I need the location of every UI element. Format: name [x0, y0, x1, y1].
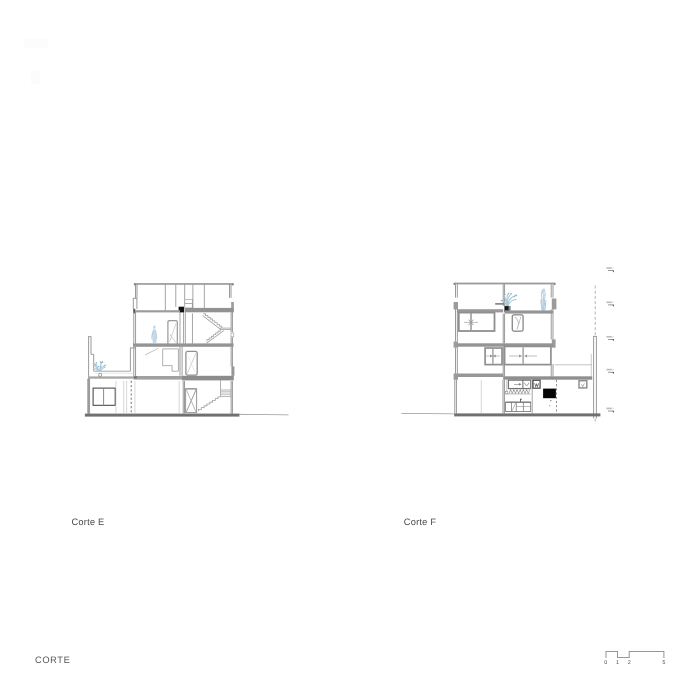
svg-text:CORTE: CORTE	[35, 655, 70, 665]
svg-text:2: 2	[628, 660, 631, 666]
svg-text:5: 5	[662, 660, 665, 666]
svg-text:Corte F: Corte F	[404, 517, 437, 527]
svg-text:Corte E: Corte E	[72, 517, 105, 527]
svg-text:1: 1	[616, 660, 619, 666]
svg-text:0: 0	[604, 660, 607, 666]
